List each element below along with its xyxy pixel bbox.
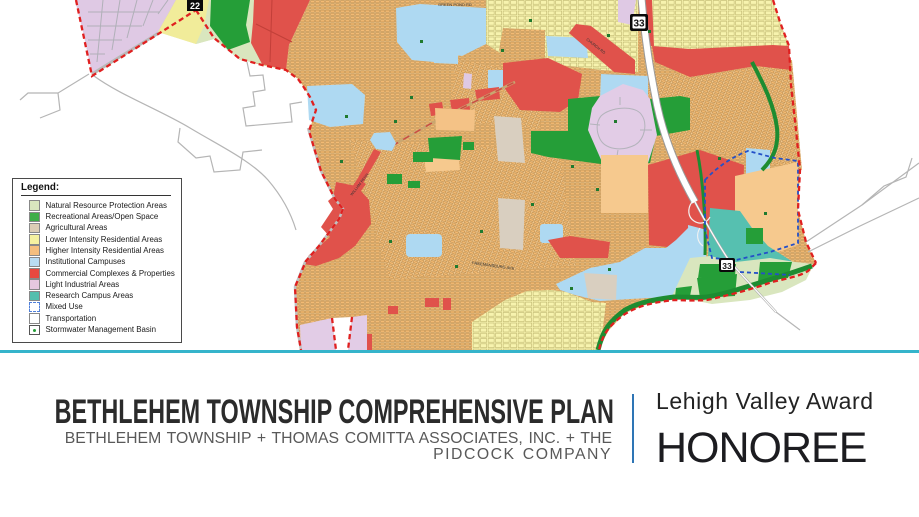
svg-text:33: 33	[633, 19, 645, 30]
svg-text:GREEN POND RD: GREEN POND RD	[438, 2, 472, 7]
svg-text:33: 33	[722, 261, 732, 271]
svg-text:22: 22	[190, 1, 200, 11]
